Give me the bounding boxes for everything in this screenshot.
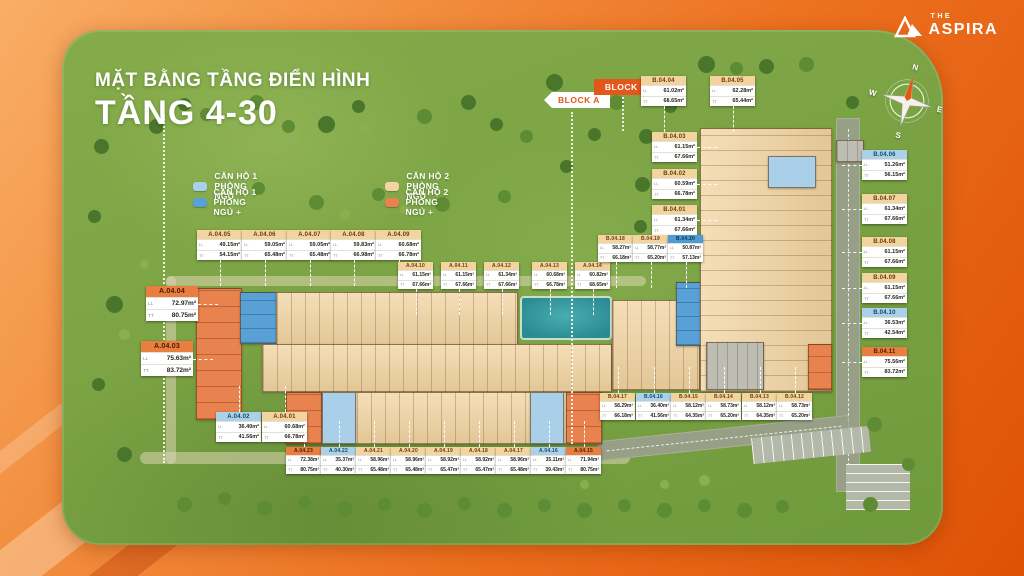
unit-code: A.04.11 [441,262,476,270]
leader-line [593,289,594,315]
unit-area-row: TT57.13m² [668,253,703,263]
area-prefix: LL [654,217,658,222]
area-prefix: LL [654,181,658,186]
unit-area-row: LL60.59m² [652,178,697,189]
area-value: 59.83m² [354,242,375,248]
area-value: 60.68m² [285,424,306,430]
area-prefix: TT [864,173,869,178]
unit-area-row: LL59.05m² [242,239,287,250]
unit-area-row: TT68.65m² [641,96,686,107]
unit-code: B.04.15 [671,393,706,401]
area-value: 65.48m² [405,467,424,473]
area-value: 66.78m² [546,282,565,288]
area-value: 66.18m² [614,413,633,419]
area-prefix: LL [779,404,783,408]
unit-label-a-04-10[interactable]: A.04.10LL61.15m²TT67.66m² [398,262,433,289]
area-value: 83.72m² [885,369,906,375]
unit-label-a-04-17[interactable]: A.04.17LL58.96m²TT65.48m² [496,447,531,474]
area-value: 68.65m² [664,98,685,104]
area-value: 65.20m² [720,413,739,419]
unit-code: A.04.13 [532,262,567,270]
area-prefix: TT [443,283,447,287]
unit-area-row: TT65.47m² [461,465,496,475]
area-value: 41.56m² [650,413,669,419]
area-value: 58.77m² [647,245,666,251]
area-prefix: LL [744,404,748,408]
unit-code: A.04.18 [461,447,496,455]
area-value: 65.48m² [510,467,529,473]
unit-code: A.04.02 [216,412,261,421]
unit-area-row: LL61.02m² [641,85,686,96]
area-prefix: TT [486,283,490,287]
unit-label-a-04-13[interactable]: A.04.13LL60.68m²TT66.78m² [532,262,567,289]
area-prefix: TT [670,256,674,260]
unit-area-row: LL58.12m² [671,401,706,411]
leader-line [842,209,862,210]
area-prefix: LL [864,162,868,167]
area-prefix: TT [864,217,869,222]
unit-label-b-04-03[interactable]: B.04.03LL61.15m²TT67.66m² [652,132,697,162]
leader-line [220,260,221,286]
unit-code: B.04.01 [652,205,697,214]
area-prefix: TT [400,283,404,287]
unit-area-row: TT83.72m² [862,367,907,378]
area-prefix: LL [654,144,658,149]
unit-code: A.04.05 [197,230,242,239]
area-value: 67.66m² [885,216,906,222]
unit-label-a-04-22[interactable]: A.04.22LL35.37m²TT40.30m² [321,447,356,474]
area-value: 58.92m² [475,457,494,463]
leader-line [549,421,550,447]
unit-label-a-04-06[interactable]: A.04.06LL59.05m²TT65.48m² [242,230,287,260]
area-value: 61.15m² [885,285,906,291]
leader-line [654,367,655,393]
unit-label-b-04-07[interactable]: B.04.07LL61.34m²TT67.66m² [862,194,907,224]
unit-label-b-04-13[interactable]: B.04.13LL58.12m²TT64.35m² [742,393,777,420]
area-value: 51.26m² [885,162,906,168]
unit-area-row: LL60.68m² [262,421,307,432]
unit-area-row: TT67.66m² [398,280,433,290]
compass-north-label: N [911,62,919,72]
unit-area-row: TT66.98m² [331,250,376,261]
unit-area-row: TT68.65m² [575,280,610,290]
trees-layer [0,0,9,9]
unit-code: B.04.08 [862,237,907,246]
unit-area-row: LL58.96m² [391,455,426,465]
leader-line [239,386,240,412]
leader-line [724,367,725,393]
unit-area-row: LL61.15m² [862,246,907,257]
unit-area-row: LL61.34m² [484,270,519,280]
area-value: 83.72m² [167,367,191,374]
area-value: 65.47m² [475,467,494,473]
unit-area-row: LL58.27m² [598,243,633,253]
unit-area-row: TT80.75m² [286,465,321,475]
unit-area-row: TT66.78m² [376,250,421,261]
leader-line [459,289,460,315]
brand-name: ASPIRA [929,22,998,38]
unit-area-row: LL60.82m² [575,270,610,280]
unit-code: A.04.17 [496,447,531,455]
legend-item-1br-plus: CĂN HỘ 1 PHÒNG NGỦ + [193,187,263,217]
unit-label-b-04-06[interactable]: B.04.06LL51.26m²TT56.15m² [862,150,907,180]
unit-label-b-04-10[interactable]: B.04.10LL36.53m²TT42.54m² [862,308,907,338]
area-value: 58.96m² [370,457,389,463]
unit-code: A.04.08 [331,230,376,239]
unit-code: B.04.18 [598,235,633,243]
unit-area-row: TT66.78m² [532,280,567,290]
area-value: 58.96m² [510,457,529,463]
area-prefix: TT [288,468,292,472]
leader-line [697,184,717,185]
unit-code: B.04.11 [862,347,907,356]
area-prefix: LL [199,242,203,247]
legend-item-2br-plus: CĂN HỘ 2 PHÒNG NGỦ + [385,187,455,217]
boundary-line [622,97,624,131]
area-value: 67.66m² [455,282,474,288]
site-plan-stage: MẶT BẰNG TẦNG ĐIỂN HÌNH TẦNG 4-30 CĂN HỘ… [0,0,1024,576]
area-prefix: TT [708,414,712,418]
area-value: 58.12m² [756,403,775,409]
unit-area-row: TT65.20m² [706,411,741,421]
area-value: 64.35m² [685,413,704,419]
area-value: 65.47m² [440,467,459,473]
unit-area-row: TT66.78m² [262,432,307,443]
area-prefix: TT [218,435,223,440]
unit-area-row: TT66.18m² [600,411,635,421]
area-prefix: TT [864,370,869,375]
area-prefix: LL [643,88,647,93]
unit-area-row: TT67.66m² [862,293,907,304]
compass-west-label: W [868,88,878,99]
unit-label-a-04-20[interactable]: A.04.20LL58.96m²TT65.48m² [391,447,426,474]
compass-star-icon [873,67,941,135]
building-b-orange-unit [808,344,832,390]
parking-lot [846,464,910,510]
area-value: 75.56m² [885,359,906,365]
area-value: 71.94m² [580,457,599,463]
area-prefix: LL [864,359,868,364]
floorplan-poster: MẶT BẰNG TẦNG ĐIỂN HÌNH TẦNG 4-30 CĂN HỘ… [0,0,1024,576]
area-value: 61.34m² [885,206,906,212]
area-value: 41.56m² [239,434,260,440]
leader-line [842,323,862,324]
unit-area-row: TT67.66m² [652,152,697,163]
unit-label-b-04-20[interactable]: B.04.20LL50.87m²TT57.13m² [668,235,703,262]
unit-area-row: TT66.18m² [598,253,633,263]
unit-label-b-04-18[interactable]: B.04.18LL58.27m²TT66.18m² [598,235,633,262]
leader-line [374,421,375,447]
unit-code: A.04.07 [287,230,332,239]
unit-label-b-04-04[interactable]: B.04.04LL61.02m²TT68.65m² [641,76,686,106]
area-value: 59.05m² [265,242,286,248]
unit-label-a-04-16[interactable]: A.04.16LL35.11m²TT39.43m² [531,447,566,474]
unit-label-a-04-23[interactable]: A.04.23LL72.38m²TT80.75m² [286,447,321,474]
area-prefix: LL [289,242,293,247]
unit-area-row: LL61.15m² [862,282,907,293]
area-value: 61.15m² [412,272,431,278]
legend-label: CĂN HỘ 1 PHÒNG NGỦ + [214,187,263,217]
leader-line [760,367,761,393]
area-prefix: TT [654,155,659,160]
unit-label-a-04-14[interactable]: A.04.14LL60.82m²TT68.65m² [575,262,610,289]
unit-code: A.04.03 [141,341,193,352]
area-prefix: LL [358,458,362,462]
area-value: 58.29m² [614,403,633,409]
unit-area-row: TT65.48m² [496,465,531,475]
area-prefix: TT [602,414,606,418]
area-prefix: LL [864,320,868,325]
area-prefix: TT [143,368,149,373]
unit-area-row: LL58.77m² [633,243,668,253]
unit-area-row: LL62.28m² [710,85,755,96]
unit-code: A.04.16 [531,447,566,455]
unit-code: A.04.04 [146,286,198,297]
unit-label-a-04-19[interactable]: A.04.19LL58.92m²TT65.47m² [426,447,461,474]
area-value: 61.34m² [498,272,517,278]
area-prefix: TT [654,228,659,233]
area-prefix: LL [673,404,677,408]
area-value: 42.54m² [885,330,906,336]
area-value: 61.15m² [455,272,474,278]
unit-label-a-04-02[interactable]: A.04.02LL36.40m²TT41.56m² [216,412,261,442]
area-value: 66.78m² [285,434,306,440]
building-b-annex [836,140,864,162]
unit-area-row: LL72.38m² [286,455,321,465]
unit-area-row: LL49.15m² [197,239,242,250]
unit-label-b-04-15[interactable]: B.04.15LL58.12m²TT64.35m² [671,393,706,420]
area-prefix: LL [708,404,712,408]
leader-line [310,260,311,286]
unit-label-b-04-11[interactable]: B.04.11LL75.56m²TT83.72m² [862,347,907,377]
area-value: 54.15m² [220,252,241,258]
unit-label-b-04-17[interactable]: B.04.17LL58.29m²TT66.18m² [600,393,635,420]
unit-code: A.04.06 [242,230,287,239]
area-value: 64.35m² [756,413,775,419]
unit-area-row: TT64.35m² [671,411,706,421]
area-prefix: LL [577,273,581,277]
unit-area-row: LL59.05m² [287,239,332,250]
area-prefix: TT [393,468,397,472]
area-value: 66.18m² [612,255,631,261]
unit-label-a-04-15[interactable]: A.04.15LL71.94m²TT80.75m² [566,447,601,474]
unit-code: B.04.09 [862,273,907,282]
area-value: 62.28m² [733,88,754,94]
unit-area-row: TT65.48m² [287,250,332,261]
area-value: 67.66m² [675,154,696,160]
area-prefix: TT [864,260,869,265]
unit-label-b-04-02[interactable]: B.04.02LL60.59m²TT66.78m² [652,169,697,199]
leader-line [444,421,445,447]
area-value: 61.15m² [885,249,906,255]
unit-code: B.04.14 [706,393,741,401]
area-prefix: LL [498,458,502,462]
area-value: 58.12m² [685,403,704,409]
leader-line [651,262,652,288]
leader-line [689,367,690,393]
area-value: 65.48m² [265,252,286,258]
area-value: 75.63m² [167,355,191,362]
unit-area-row: TT67.66m² [441,280,476,290]
area-prefix: LL [638,404,642,408]
area-value: 65.44m² [733,98,754,104]
unit-label-a-04-09[interactable]: A.04.09LL60.68m²TT66.78m² [376,230,421,260]
unit-area-row: LL60.68m² [376,239,421,250]
area-prefix: LL [393,458,397,462]
area-prefix: LL [602,404,606,408]
area-value: 60.59m² [675,181,696,187]
area-prefix: LL [534,273,538,277]
area-prefix: LL [143,356,148,361]
area-prefix: TT [428,468,432,472]
unit-label-a-04-01[interactable]: A.04.01LL60.68m²TT66.78m² [262,412,307,442]
area-prefix: TT [568,468,572,472]
area-value: 49.15m² [220,242,241,248]
unit-area-row: TT65.20m² [633,253,668,263]
unit-area-row: LL58.73m² [706,401,741,411]
unit-label-b-04-09[interactable]: B.04.09LL61.15m²TT67.66m² [862,273,907,303]
unit-area-row: LL58.29m² [600,401,635,411]
leader-line [616,262,617,288]
area-prefix: LL [712,88,716,93]
unit-area-row: LL51.26m² [862,159,907,170]
unit-area-row: LL61.34m² [652,214,697,225]
leader-line [514,421,515,447]
area-prefix: LL [864,249,868,254]
unit-code: A.04.23 [286,447,321,455]
legend-swatch-2br-plus [385,198,399,207]
unit-label-a-04-03[interactable]: A.04.03LL75.63m²TT83.72m² [141,341,193,376]
unit-code: A.04.20 [391,447,426,455]
unit-area-row: LL35.37m² [321,455,356,465]
area-value: 65.20m² [791,413,810,419]
area-prefix: TT [638,414,642,418]
unit-label-a-04-08[interactable]: A.04.08LL59.83m²TT66.98m² [331,230,376,260]
brand-logo: THE ASPIRA [894,13,998,38]
unit-area-row: TT65.20m² [777,411,812,421]
compass-rose: N E S W [872,62,942,142]
area-prefix: TT [635,256,639,260]
building-b-lightblue-unit [768,156,816,188]
unit-label-b-04-05[interactable]: B.04.05LL62.28m²TT65.44m² [710,76,755,106]
boundary-line [571,112,573,444]
compass-east-label: E [936,105,943,115]
leader-line [550,289,551,315]
area-prefix: LL [148,301,153,306]
unit-area-row: TT56.15m² [862,170,907,181]
area-prefix: TT [463,468,467,472]
unit-label-a-04-04[interactable]: A.04.04LL72.97m²TT80.75m² [146,286,198,321]
title-line1: MẶT BẰNG TẦNG ĐIỂN HÌNH [95,70,370,92]
unit-area-row: TT65.48m² [391,465,426,475]
area-prefix: TT [577,283,581,287]
unit-code: B.04.13 [742,393,777,401]
area-prefix: LL [288,458,292,462]
area-value: 57.13m² [682,255,701,261]
unit-area-row: TT39.43m² [531,465,566,475]
area-value: 60.68m² [399,242,420,248]
legend-swatch-1br-plus [193,198,207,207]
area-prefix: LL [463,458,467,462]
unit-label-b-04-08[interactable]: B.04.08LL61.15m²TT67.66m² [862,237,907,267]
unit-area-row: TT67.66m² [862,214,907,225]
unit-area-row: TT64.35m² [742,411,777,421]
unit-label-a-04-18[interactable]: A.04.18LL58.92m²TT65.47m² [461,447,496,474]
unit-area-row: LL61.15m² [652,141,697,152]
unit-label-a-04-11[interactable]: A.04.11LL61.15m²TT67.66m² [441,262,476,289]
unit-area-row: TT65.48m² [242,250,287,261]
area-value: 61.34m² [675,217,696,223]
leader-line [618,367,619,393]
area-prefix: TT [533,468,537,472]
unit-area-row: LL60.68m² [532,270,567,280]
unit-code: B.04.19 [633,235,668,243]
unit-area-row: TT80.75m² [566,465,601,475]
unit-label-b-04-16[interactable]: B.04.16LL36.40m²TT41.56m² [636,393,671,420]
unit-code: B.04.05 [710,76,755,85]
unit-code: B.04.10 [862,308,907,317]
building-a-mid-strip [262,344,612,392]
area-prefix: LL [218,424,222,429]
leader-line [304,421,305,447]
unit-area-row: TT41.56m² [216,432,261,443]
area-value: 68.65m² [589,282,608,288]
unit-code: B.04.17 [600,393,635,401]
area-value: 36.40m² [650,403,669,409]
area-prefix: TT [148,313,154,318]
unit-label-a-04-21[interactable]: A.04.21LL58.96m²TT65.48m² [356,447,391,474]
area-prefix: LL [486,273,490,277]
area-prefix: LL [264,424,268,429]
area-prefix: TT [643,99,648,104]
leader-line [686,262,687,288]
area-value: 80.75m² [580,467,599,473]
unit-area-row: LL61.15m² [441,270,476,280]
area-prefix: LL [864,206,868,211]
unit-code: A.04.22 [321,447,356,455]
area-value: 72.97m² [172,300,196,307]
leader-line [339,421,340,447]
area-value: 65.20m² [647,255,666,261]
unit-area-row: LL75.63m² [141,352,193,364]
unit-code: B.04.07 [862,194,907,203]
unit-label-a-04-07[interactable]: A.04.07LL59.05m²TT65.48m² [287,230,332,260]
unit-area-row: LL61.15m² [398,270,433,280]
unit-area-row: LL58.96m² [496,455,531,465]
unit-label-a-04-05[interactable]: A.04.05LL49.15m²TT54.15m² [197,230,242,260]
area-prefix: LL [533,458,537,462]
unit-code: B.04.16 [636,393,671,401]
unit-area-row: LL59.83m² [331,239,376,250]
unit-area-row: LL58.12m² [742,401,777,411]
unit-area-row: TT65.47m² [426,465,461,475]
unit-area-row: LL35.11m² [531,455,566,465]
building-a-blue-unit [240,292,278,344]
unit-label-b-04-19[interactable]: B.04.19LL58.77m²TT65.20m² [633,235,668,262]
unit-label-a-04-12[interactable]: A.04.12LL61.34m²TT67.66m² [484,262,519,289]
area-value: 67.66m² [885,259,906,265]
unit-code: B.04.12 [777,393,812,401]
unit-label-b-04-12[interactable]: B.04.12LL58.73m²TT65.20m² [777,393,812,420]
unit-code: A.04.14 [575,262,610,270]
area-value: 66.78m² [399,252,420,258]
area-value: 60.68m² [546,272,565,278]
unit-area-row: TT41.56m² [636,411,671,421]
area-value: 39.43m² [545,467,564,473]
unit-label-b-04-01[interactable]: B.04.01LL61.34m²TT67.66m² [652,205,697,235]
unit-label-b-04-14[interactable]: B.04.14LL58.73m²TT65.20m² [706,393,741,420]
aspira-logo-icon [894,16,924,38]
